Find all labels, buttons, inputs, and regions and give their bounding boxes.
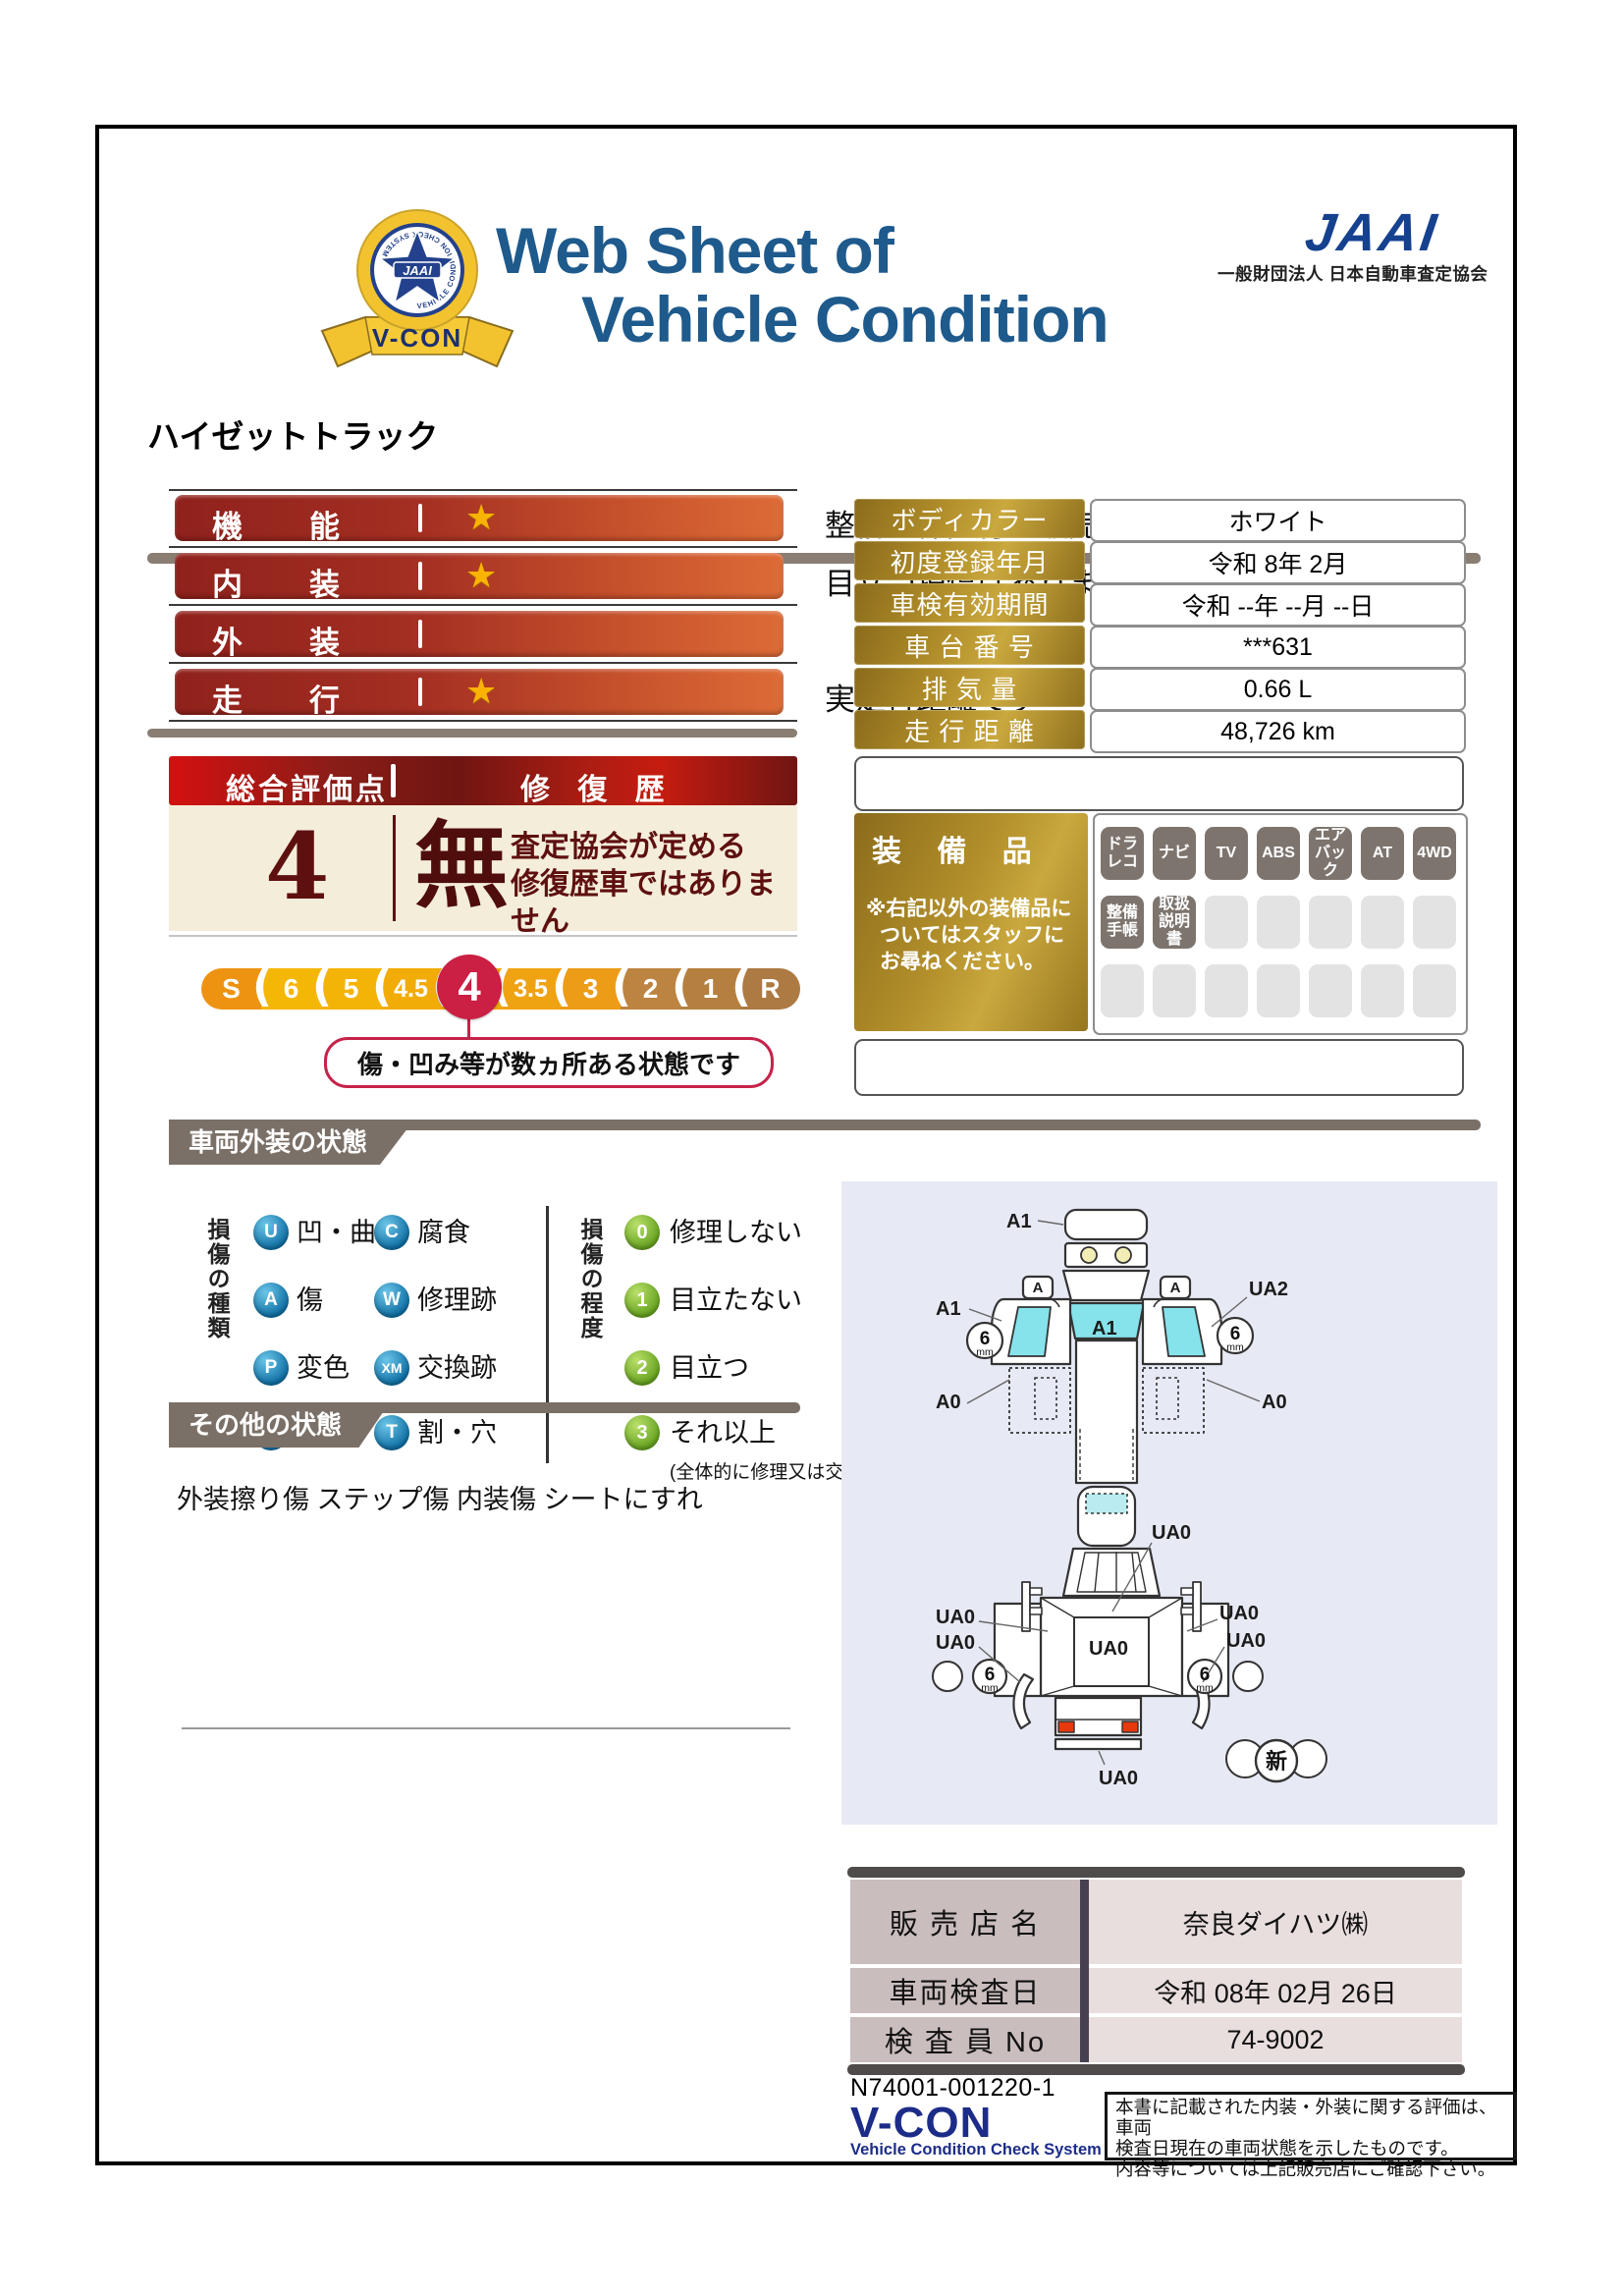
diagram-label: UA0 — [1219, 1603, 1259, 1624]
damage-kind-header: 損傷の種類 — [200, 1218, 234, 1434]
mirror-label: A — [1170, 1280, 1181, 1296]
selected-score-marker: 4 — [437, 955, 502, 1019]
dealer-label-inspection-date: 車両検査日 — [850, 1968, 1080, 2013]
svg-text:V-CON: V-CON — [372, 323, 462, 353]
equip-badge-owners-manual: 取扱 説明書 — [1153, 896, 1196, 949]
equip-badge-maintenance-book: 整備 手帳 — [1101, 896, 1144, 949]
kind-label-XM: 交換跡 — [417, 1350, 497, 1386]
diagram-label: UA0 — [1099, 1768, 1138, 1789]
tread-unit: mm — [981, 1682, 999, 1694]
kind-badge-A: A — [253, 1283, 289, 1318]
equip-badge-navi: ナビ — [1153, 827, 1196, 880]
kind-badge-C: C — [374, 1215, 409, 1250]
sheet-title-line1: Web Sheet of — [496, 218, 893, 283]
equip-badge-empty — [1309, 896, 1352, 949]
degree-label-3: それ以上 — [670, 1415, 776, 1450]
info-value-inspection-period: 令和 --年 --月 --日 — [1090, 583, 1466, 627]
note-line — [182, 1727, 790, 1729]
side-lower-left — [1009, 1368, 1070, 1433]
info-label-inspection-period: 車検有効期間 — [854, 583, 1085, 623]
rating-row-function: 機能 ★ — [175, 495, 784, 541]
kind-badge-T: T — [374, 1415, 409, 1450]
equip-badge-tv: TV — [1205, 827, 1248, 880]
cab-roof — [1076, 1340, 1137, 1483]
rear-bumper — [1055, 1739, 1141, 1749]
exterior-section-title: 車両外装の状態 — [169, 1120, 414, 1165]
equip-badge-4wd: 4WD — [1413, 827, 1456, 880]
info-label-mileage: 走 行 距 離 — [854, 710, 1085, 749]
repair-note-line1: 査定協会が定める — [511, 829, 746, 866]
info-label-first-registration: 初度登録年月 — [854, 541, 1085, 580]
kind-label-A: 傷 — [297, 1283, 323, 1318]
vcon-subtitle: Vehicle Condition Check System — [850, 2141, 1102, 2159]
equip-badge-empty — [1101, 964, 1144, 1017]
tread-unit: mm — [1226, 1341, 1244, 1353]
rating-divider-line — [169, 489, 797, 491]
tread-unit: mm — [976, 1346, 994, 1358]
mirror-label: A — [1033, 1280, 1044, 1296]
rating-row-interior: 内装 ★ — [175, 553, 784, 599]
kind-label-T: 割・穴 — [417, 1415, 497, 1450]
kind-label-C: 腐食 — [417, 1215, 470, 1250]
other-condition-text: 外装擦り傷 ステップ傷 内装傷 シートにすれ — [177, 1478, 703, 1516]
diagram-label: A1 — [1006, 1211, 1032, 1232]
info-label-chassis-no: 車 台 番 号 — [854, 626, 1085, 665]
dealer-table-divider — [1080, 1880, 1089, 2062]
kind-badge-XM: XM — [374, 1350, 409, 1386]
score-callout: 傷・凹み等が数ヵ所ある状態です — [324, 1037, 774, 1088]
equipment-block: 装 備 品 ※右記以外の装備品に ついてはスタッフに お尋ねください。 — [854, 813, 1088, 1031]
info-value-mileage: 48,726 km — [1090, 710, 1466, 753]
headlight-left — [1081, 1247, 1097, 1263]
equipment-title: 装 備 品 — [872, 827, 1046, 870]
rating-star-1: ★ — [465, 555, 497, 596]
kind-badge-P: P — [253, 1350, 289, 1386]
legend-divider — [546, 1206, 549, 1463]
info-value-displacement: 0.66 L — [1090, 668, 1466, 711]
wheel-outer-right — [1233, 1662, 1263, 1691]
diagram-label: UA0 — [1226, 1630, 1266, 1652]
dealer-table-top-bar — [847, 1867, 1465, 1878]
rating-row-exterior: 外装 ★ — [175, 611, 784, 657]
callout-pointer — [467, 1019, 470, 1039]
overall-header: 総合評価点 修 復 歴 — [169, 756, 797, 805]
tread-unit: mm — [1196, 1682, 1214, 1694]
bar-divider — [418, 620, 422, 648]
windshield-frame — [1063, 1271, 1149, 1300]
equip-badge-empty — [1361, 964, 1404, 1017]
overall-body: 4 無 査定協会が定める 修復歴車ではありません — [169, 805, 797, 931]
rating-label: 走行 — [212, 676, 406, 720]
diagram-panel: A1 A1 UA2 A1 A0 A0 A A UA0 UA0 UA0 UA0 U… — [841, 1181, 1497, 1825]
disclaimer-line3: 内容等については上記販売店にご確認下さい。 — [1115, 2159, 1506, 2179]
rating-divider-line — [169, 546, 797, 548]
dealer-value-inspection-date: 令和 08年 02月 26日 — [1089, 1968, 1462, 2013]
rating-divider-line — [169, 604, 797, 606]
diagram-label: UA0 — [936, 1632, 975, 1654]
info-value-chassis-no: ***631 — [1090, 626, 1466, 669]
diagram-label: A0 — [936, 1392, 961, 1413]
degree-label-0: 修理しない — [670, 1215, 802, 1250]
separator-line — [169, 935, 797, 937]
equip-badge-at: AT — [1361, 827, 1404, 880]
equip-badge-empty — [1205, 964, 1248, 1017]
info-label-bodycolor: ボディカラー — [854, 499, 1085, 538]
equip-badge-empty — [1257, 964, 1300, 1017]
tail-light-left — [1058, 1722, 1074, 1732]
stake-left — [1022, 1582, 1030, 1631]
degree-badge-0: 0 — [624, 1215, 660, 1250]
truck-front-face — [1065, 1243, 1147, 1267]
diagram-label: UA0 — [1089, 1638, 1128, 1660]
diagram-label: UA0 — [1152, 1522, 1191, 1544]
side-lower-right — [1143, 1368, 1204, 1433]
equip-badge-empty — [1309, 964, 1352, 1017]
equip-badge-empty — [1413, 964, 1456, 1017]
stake-right — [1193, 1582, 1201, 1631]
headlight-right — [1115, 1247, 1131, 1263]
equip-badge-abs: ABS — [1257, 827, 1300, 880]
kind-label-P: 変色 — [297, 1350, 350, 1386]
equip-badge-empty — [1413, 896, 1456, 949]
svg-text:JAAI: JAAI — [403, 263, 432, 278]
info-value-first-registration: 令和 8年 2月 — [1090, 541, 1466, 584]
degree-label-1: 目立たない — [670, 1283, 802, 1318]
jaai-logo: JAAI — [1302, 206, 1442, 259]
rear-window — [1086, 1494, 1127, 1513]
rating-label: 外装 — [212, 618, 406, 662]
overall-header-left: 総合評価点 — [226, 765, 388, 808]
degree-badge-3: 3 — [624, 1415, 660, 1450]
equip-badge-empty — [1205, 896, 1248, 949]
kind-badge-W: W — [374, 1283, 409, 1318]
kind-label-W: 修理跡 — [417, 1283, 497, 1318]
diagram-label: UA2 — [1249, 1279, 1288, 1300]
rating-divider-line — [169, 662, 797, 664]
diagram-label: UA0 — [936, 1607, 975, 1628]
kind-badge-U: U — [253, 1215, 289, 1250]
notes-box-1 — [854, 756, 1464, 811]
disclaimer-line1: 本書に記載された内装・外装に関する評価は、車両 — [1115, 2097, 1506, 2138]
vehicle-name: ハイゼットトラック — [147, 410, 438, 458]
rating-label: 内装 — [212, 560, 406, 604]
rating-star-0: ★ — [465, 497, 497, 538]
spare-new-mark: 新 — [1266, 1749, 1287, 1774]
dealer-value-inspector-no: 74-9002 — [1089, 2017, 1462, 2062]
tail-light-right — [1122, 1722, 1138, 1732]
jaai-org-name: 一般財団法人 日本自動車査定協会 — [1217, 261, 1488, 286]
repair-note-line2: 修復歴車ではありません — [511, 866, 797, 941]
degree-badge-1: 1 — [624, 1283, 660, 1318]
dealer-label-inspector-no: 検 査 員 No — [850, 2017, 1080, 2062]
equip-badge-drive-recorder: ドラ レコ — [1101, 827, 1144, 880]
info-label-displacement: 排 気 量 — [854, 668, 1085, 707]
repair-history-mark: 無 — [414, 819, 509, 913]
bar-divider — [418, 678, 422, 706]
vcon-logo: V-CON — [850, 2102, 992, 2145]
diagram-label: A0 — [1262, 1392, 1287, 1413]
dealer-value-shop: 奈良ダイハツ㈱ — [1089, 1880, 1462, 1964]
rating-label: 機能 — [212, 502, 406, 546]
diagram-label: A1 — [1092, 1318, 1117, 1339]
truck-front-roof — [1065, 1210, 1147, 1239]
equipment-note-line2: ついてはスタッフに — [880, 922, 1064, 949]
damage-degree-header: 損傷の程度 — [573, 1218, 607, 1434]
rating-divider-line — [169, 720, 797, 722]
disclaimer-box: 本書に記載された内装・外装に関する評価は、車両 検査日現在の車両状態を示したもの… — [1105, 2092, 1517, 2160]
exterior-diagram: A1 A1 UA2 A1 A0 A0 A A UA0 UA0 UA0 UA0 U… — [841, 1181, 1497, 1825]
notes-box-2 — [854, 1039, 1464, 1096]
sheet-title-line2: Vehicle Condition — [581, 287, 1109, 352]
equip-badge-empty — [1361, 896, 1404, 949]
overall-score: 4 — [265, 821, 329, 913]
bar-divider — [418, 504, 422, 532]
other-section-title: その他の状態 — [169, 1402, 390, 1448]
info-value-bodycolor: ホワイト — [1090, 499, 1466, 542]
dealer-label-shop: 販 売 店 名 — [850, 1880, 1080, 1964]
wheel-outer-left — [933, 1662, 962, 1691]
kind-label-U: 凹・曲 — [297, 1215, 376, 1250]
degree-label-2: 目立つ — [670, 1350, 749, 1386]
body-divider — [393, 815, 396, 921]
rating-star-3: ★ — [465, 671, 497, 712]
equipment-note-line1: ※右記以外の装備品に — [866, 896, 1071, 922]
bar-divider — [418, 562, 422, 590]
equip-badge-empty — [1153, 964, 1196, 1017]
diagram-label: A1 — [936, 1298, 961, 1320]
section-rule — [147, 729, 797, 738]
equip-badge-airbag: エア バック — [1309, 827, 1352, 880]
disclaimer-line2: 検査日現在の車両状態を示したものです。 — [1115, 2138, 1506, 2159]
scale-seg-R: R — [740, 968, 800, 1010]
rating-row-mileage: 走行 ★ — [175, 669, 784, 715]
degree-badge-2: 2 — [624, 1350, 660, 1386]
equipment-note-line3: お尋ねください。 — [880, 949, 1045, 975]
overall-header-right: 修 復 歴 — [520, 765, 675, 808]
header-divider — [391, 764, 396, 797]
equip-badge-empty — [1257, 896, 1300, 949]
